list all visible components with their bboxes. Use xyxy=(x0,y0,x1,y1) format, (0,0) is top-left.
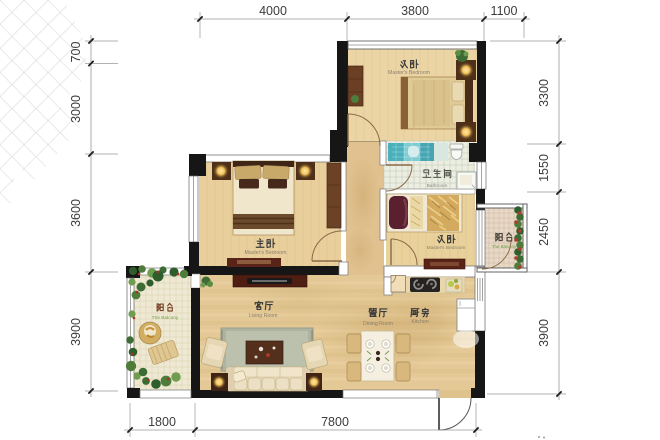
svg-text:1100: 1100 xyxy=(491,4,518,18)
svg-text:Living Room: Living Room xyxy=(249,313,278,319)
svg-text:Master's Bedroom: Master's Bedroom xyxy=(245,250,287,256)
svg-text:7800: 7800 xyxy=(321,415,349,429)
svg-text:3900: 3900 xyxy=(537,319,551,347)
svg-text:3000: 3000 xyxy=(69,95,83,123)
svg-text:2450: 2450 xyxy=(537,218,551,246)
svg-text:3900: 3900 xyxy=(69,318,83,346)
svg-text:4000: 4000 xyxy=(259,4,287,18)
svg-text:1550: 1550 xyxy=(537,154,551,182)
svg-text:3300: 3300 xyxy=(537,79,551,107)
svg-text:Master's Bedroom: Master's Bedroom xyxy=(388,70,430,76)
svg-text:Dining Room: Dining Room xyxy=(363,321,393,327)
svg-text:Bathroom: Bathroom xyxy=(427,183,448,189)
svg-text:The Balcony: The Balcony xyxy=(152,315,179,321)
svg-text:Master's Bedroom: Master's Bedroom xyxy=(427,245,466,251)
svg-text:3800: 3800 xyxy=(401,4,429,18)
svg-text:700: 700 xyxy=(69,42,83,63)
svg-text:3600: 3600 xyxy=(69,199,83,227)
svg-text:The Balcony: The Balcony xyxy=(492,244,517,249)
svg-text:Kitchen: Kitchen xyxy=(411,319,428,325)
svg-text:1800: 1800 xyxy=(148,415,176,429)
